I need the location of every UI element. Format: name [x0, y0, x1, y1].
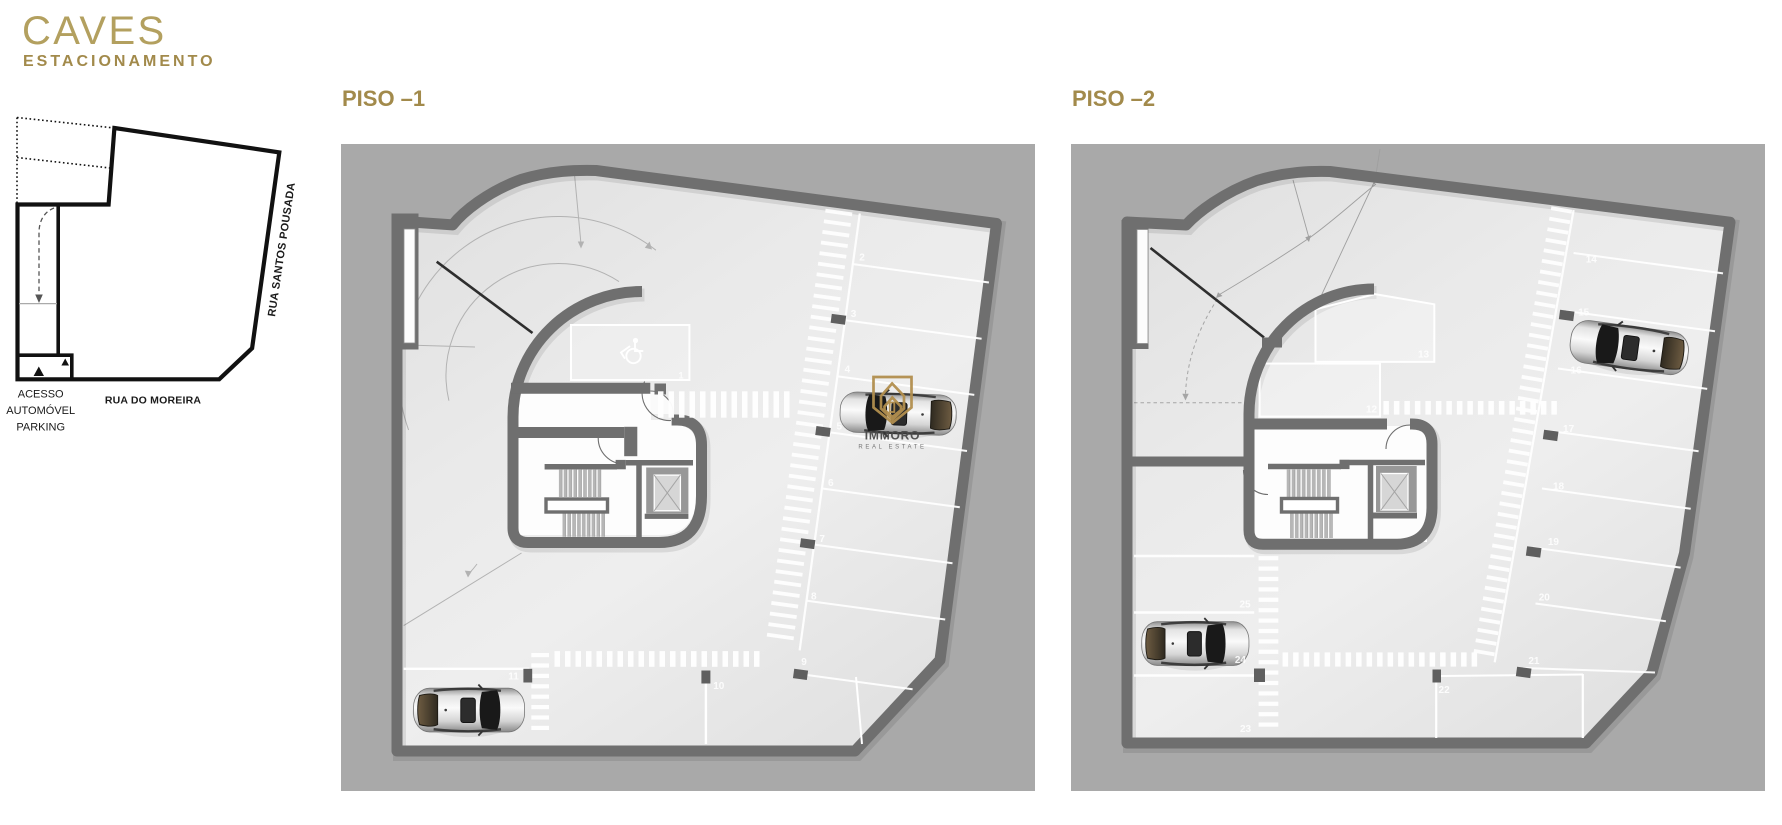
svg-text:24: 24	[1235, 655, 1247, 666]
svg-text:8: 8	[811, 592, 817, 603]
svg-text:16: 16	[1571, 366, 1583, 377]
svg-text:19: 19	[1548, 537, 1560, 548]
svg-text:18: 18	[1553, 482, 1565, 493]
svg-text:21: 21	[1528, 656, 1540, 667]
svg-text:6: 6	[828, 478, 834, 489]
svg-text:12: 12	[1366, 405, 1378, 416]
svg-text:RUA DO MOREIRA: RUA DO MOREIRA	[105, 395, 202, 407]
svg-text:14: 14	[1586, 255, 1598, 266]
svg-text:11: 11	[508, 671, 519, 682]
svg-text:ACESSO: ACESSO	[18, 389, 64, 401]
svg-text:15: 15	[1578, 308, 1590, 319]
svg-text:17: 17	[1563, 424, 1575, 435]
svg-text:25: 25	[1239, 600, 1251, 611]
svg-text:3: 3	[851, 309, 857, 320]
svg-text:22: 22	[1439, 685, 1451, 696]
svg-text:23: 23	[1240, 724, 1252, 735]
svg-text:10: 10	[713, 681, 725, 692]
svg-text:REAL ESTATE: REAL ESTATE	[858, 445, 926, 451]
svg-text:4: 4	[845, 364, 851, 375]
svg-text:2: 2	[859, 252, 865, 263]
svg-text:5: 5	[837, 421, 843, 432]
svg-text:AUTOMÓVEL: AUTOMÓVEL	[6, 404, 75, 417]
svg-text:1: 1	[678, 371, 683, 381]
svg-text:20: 20	[1539, 593, 1551, 604]
svg-text:IMMORO: IMMORO	[865, 429, 920, 443]
svg-text:PARKING: PARKING	[16, 422, 65, 434]
svg-text:9: 9	[801, 657, 807, 668]
svg-text:7: 7	[819, 534, 825, 545]
svg-text:13: 13	[1418, 350, 1430, 361]
